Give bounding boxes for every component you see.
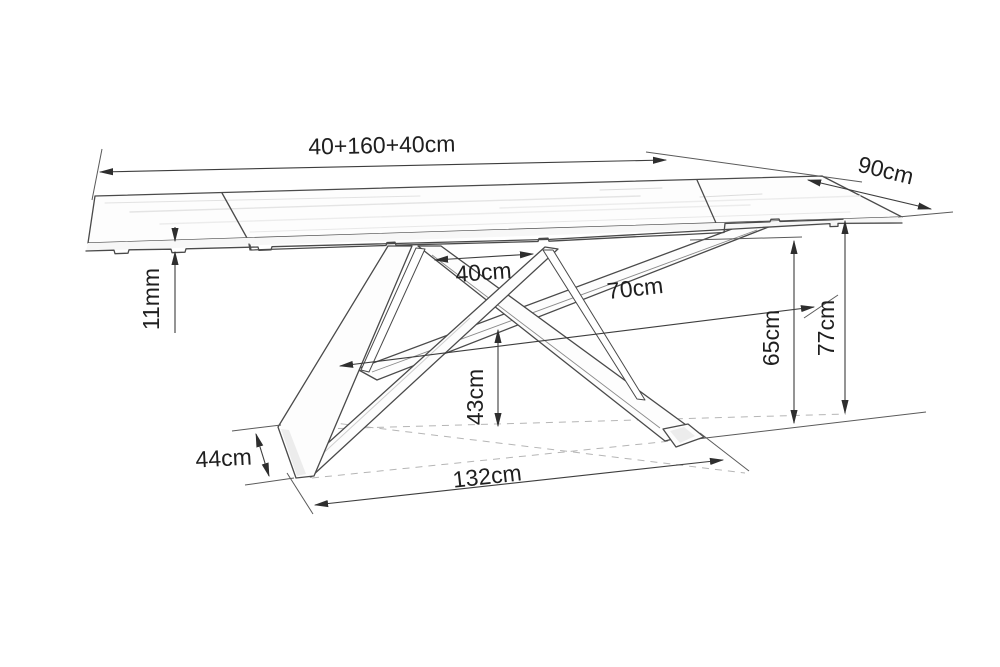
dim-table-height: 77cm [813,221,845,413]
dim-label-top-length: 40+160+40cm [308,130,456,159]
dim-label-thickness: 11mm [138,268,164,330]
dim-label-clearance-height: 65cm [758,310,784,366]
dim-label-table-height: 77cm [813,300,839,356]
dim-label-cross-height: 43cm [462,369,488,425]
technical-drawing: 40+160+40cm 90cm 11mm 40cm 70cm 43cm 65c… [0,0,1000,667]
dim-clearance-height: 65cm [690,237,802,423]
dim-label-foot-width: 44cm [195,444,253,473]
table-base [278,223,771,478]
dim-label-base-length: 132cm [451,459,522,492]
floor-line [697,412,926,439]
dim-label-plate-width: 40cm [454,257,512,287]
dim-label-depth: 90cm [855,151,916,189]
floor-projection-dashed-lines [286,414,846,478]
dim-foot-width: 44cm [195,425,294,485]
tabletop [86,176,902,254]
dim-label-base-top-span: 70cm [606,272,665,304]
table-dimension-drawing: 40+160+40cm 90cm 11mm 40cm 70cm 43cm 65c… [0,0,1000,667]
